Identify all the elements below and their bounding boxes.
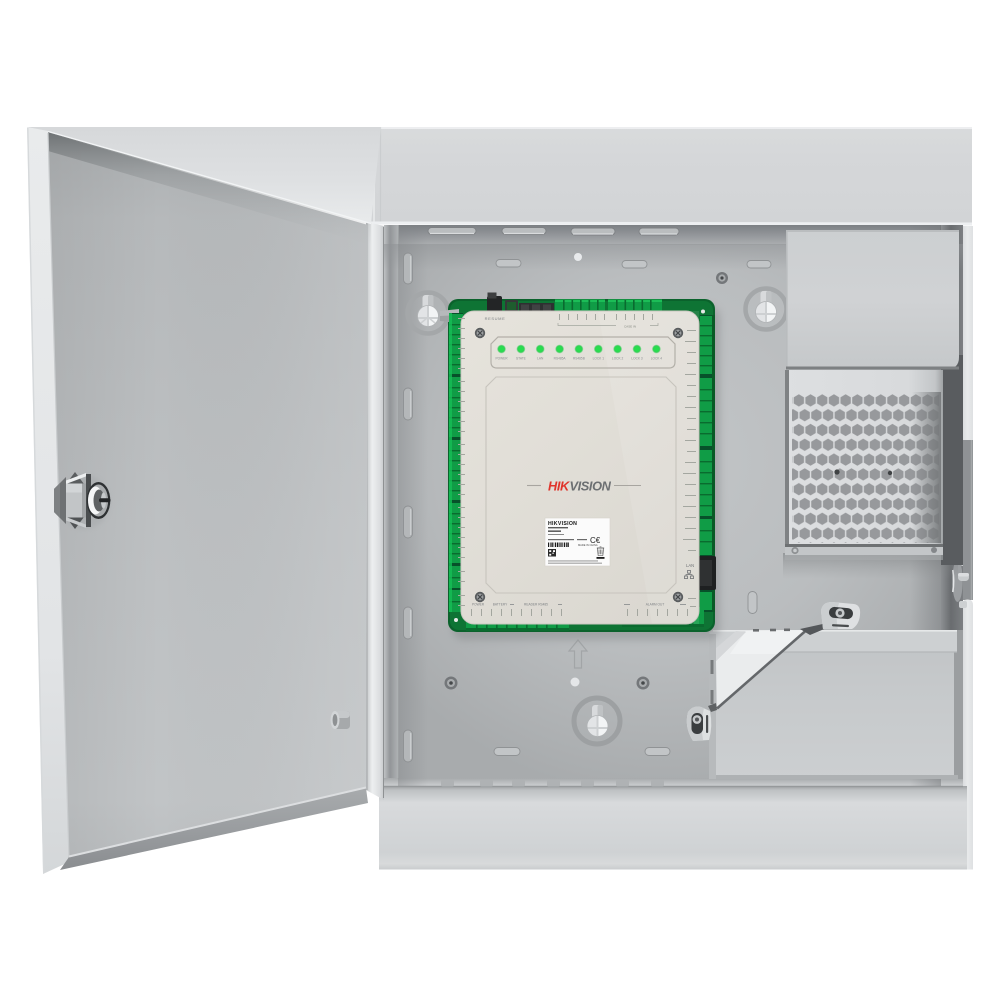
svg-text:POWER: POWER xyxy=(472,603,485,607)
svg-text:READER RS485: READER RS485 xyxy=(524,603,548,607)
svg-text:VISION: VISION xyxy=(570,479,612,494)
svg-text:LOCK 3: LOCK 3 xyxy=(631,357,643,361)
svg-text:RS485A: RS485A xyxy=(554,357,567,361)
svg-text:STATE: STATE xyxy=(516,357,526,361)
svg-text:LOCK 4: LOCK 4 xyxy=(651,357,663,361)
svg-text:HIK: HIK xyxy=(548,479,571,494)
svg-text:CASE IN: CASE IN xyxy=(624,325,636,329)
svg-text:HIKVISION: HIKVISION xyxy=(548,521,577,527)
svg-text:RESUME: RESUME xyxy=(485,316,506,321)
svg-text:ALARM OUT: ALARM OUT xyxy=(646,603,665,607)
svg-text:POWER: POWER xyxy=(495,357,508,361)
svg-text:LOCK 1: LOCK 1 xyxy=(593,357,605,361)
svg-text:LOCK 2: LOCK 2 xyxy=(612,357,624,361)
svg-text:LAN: LAN xyxy=(686,563,694,568)
svg-text:C€: C€ xyxy=(590,536,601,545)
svg-text:BATTERY: BATTERY xyxy=(493,603,508,607)
svg-text:RS485B: RS485B xyxy=(573,357,585,361)
svg-text:LAN: LAN xyxy=(537,357,544,361)
